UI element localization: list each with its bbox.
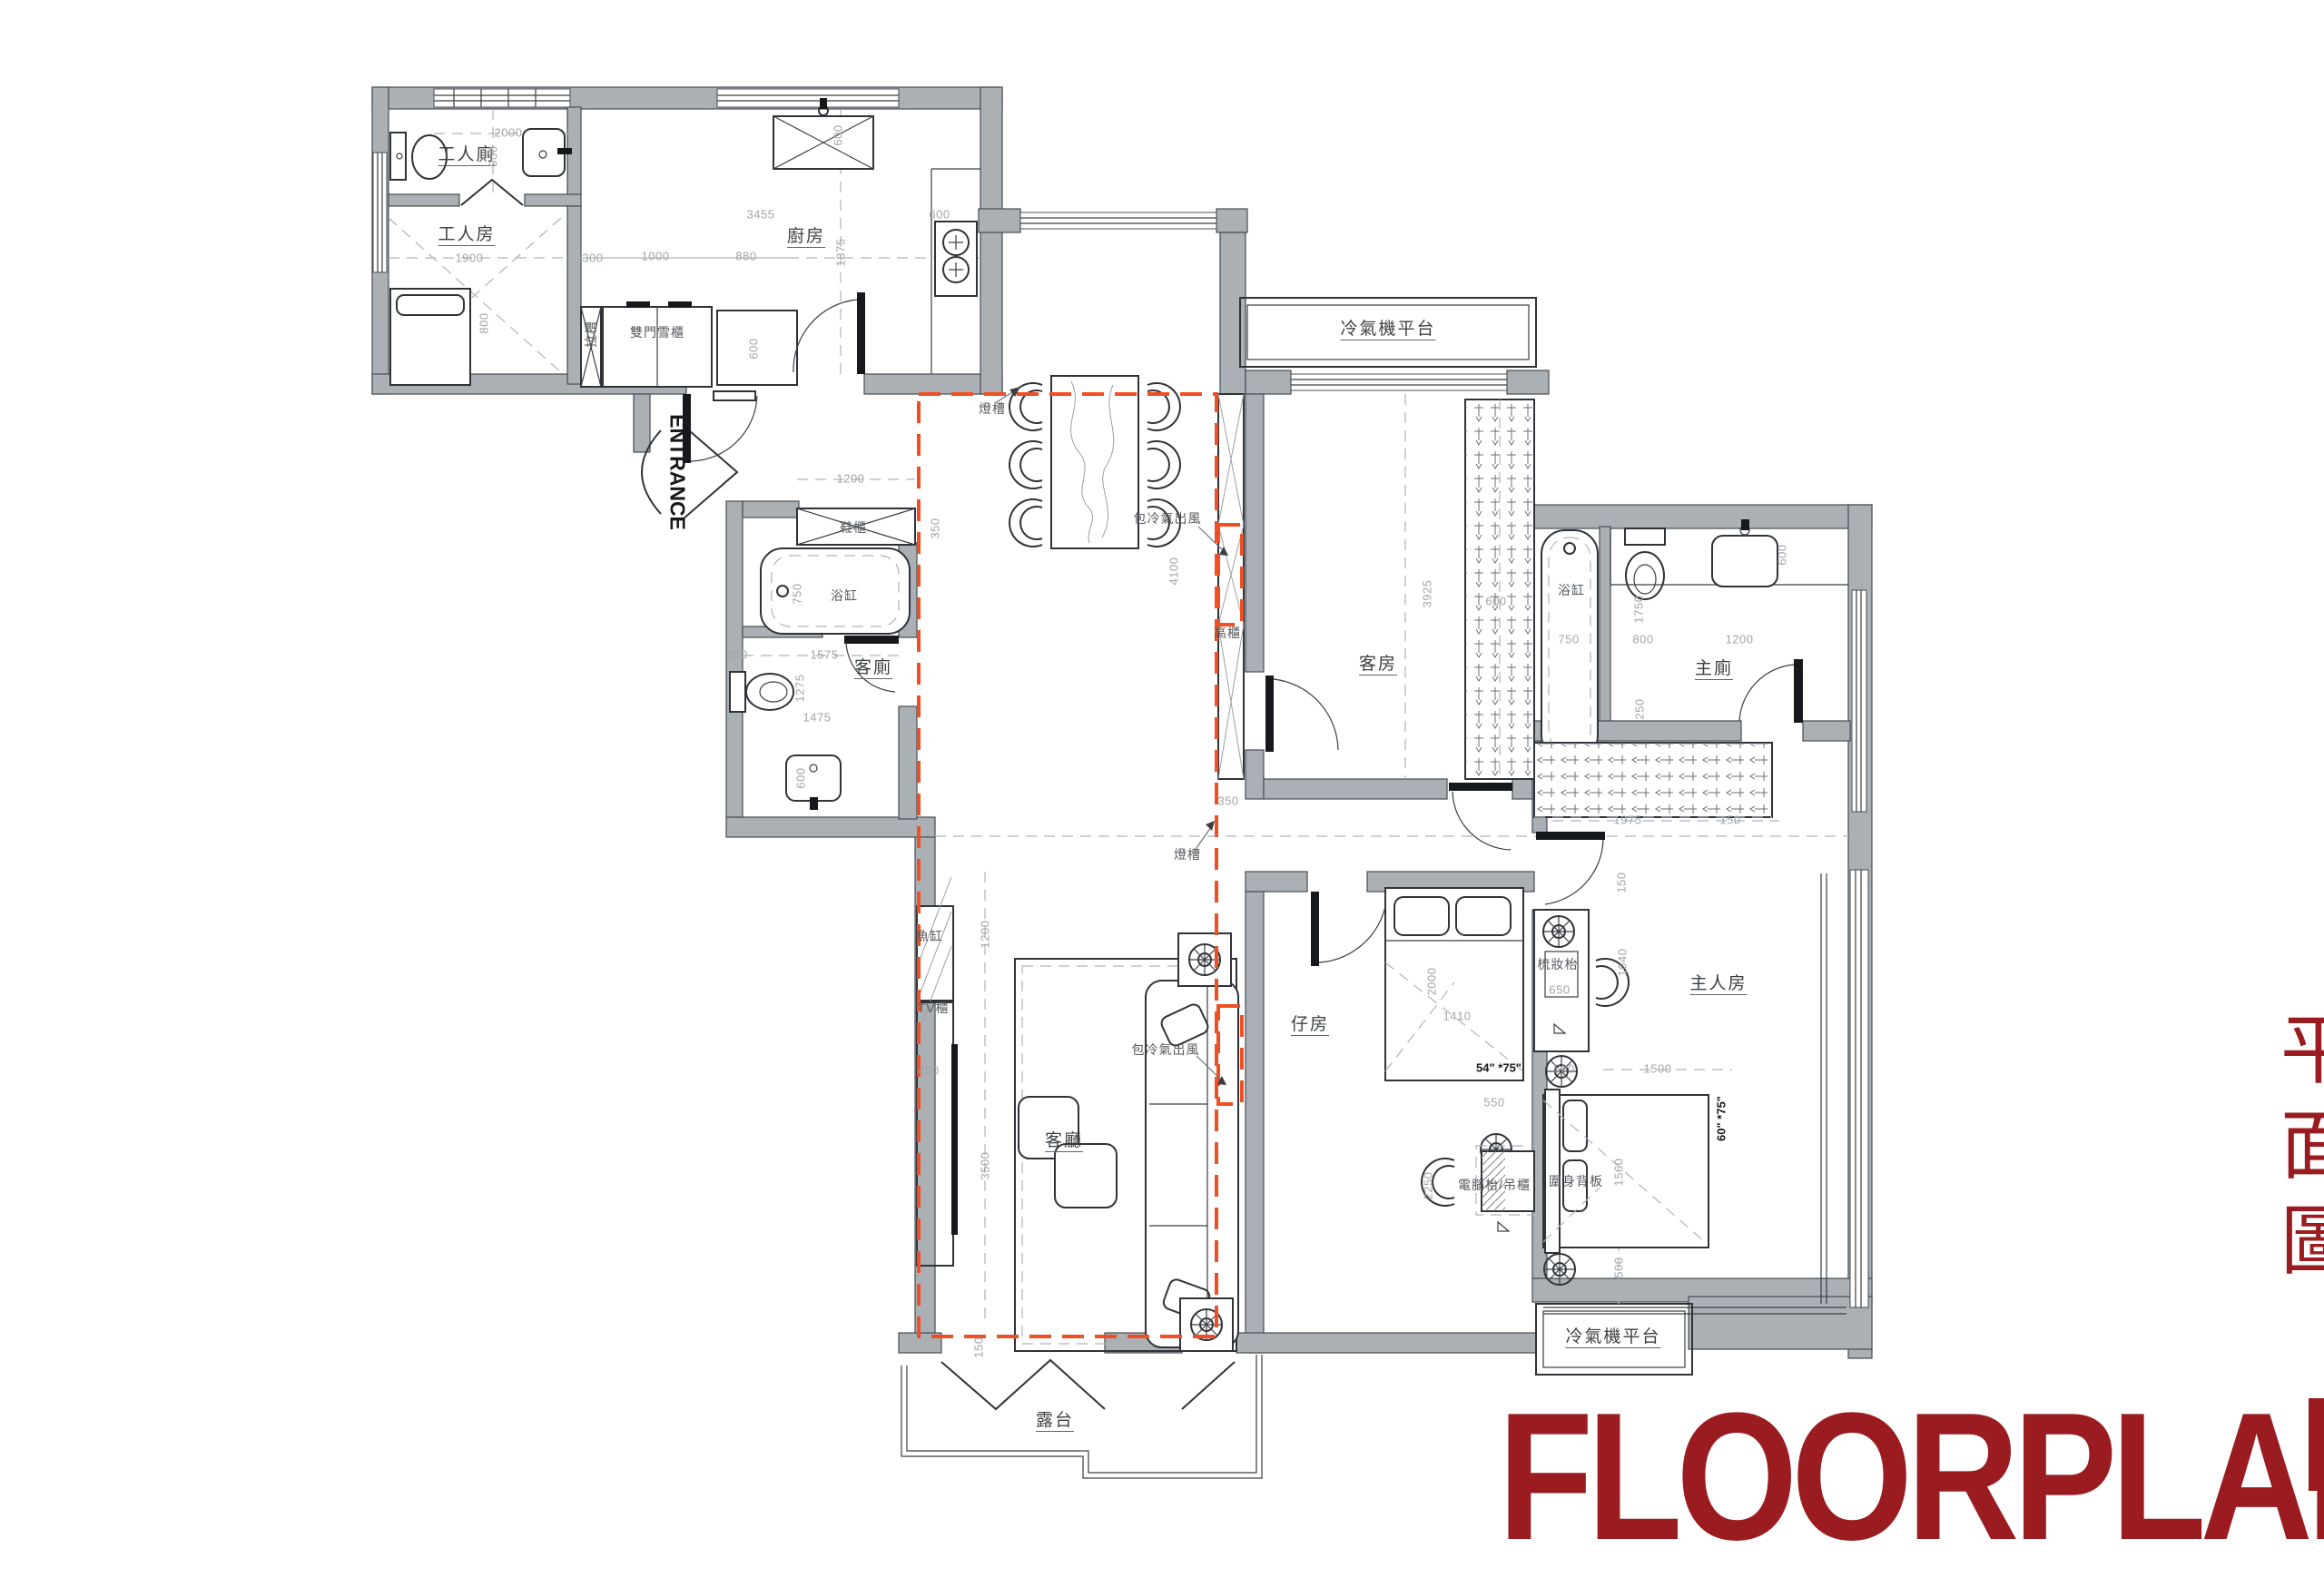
room-label-worker-room: 工人房: [438, 226, 495, 246]
dim-label: 400: [918, 1065, 939, 1077]
dim-label: 800: [1632, 634, 1653, 646]
dim-label: 1750: [1633, 596, 1645, 624]
dim-label: 1200: [980, 921, 991, 949]
dim-label: 650: [1549, 984, 1570, 996]
dim-label: 1560: [1613, 1159, 1625, 1187]
dim-label: 800: [478, 312, 490, 333]
feature-label-shoe-cabinet: 鞋櫃: [840, 521, 867, 534]
feature-label-ac-outlet-boxing-2: 包冷氣出風: [1132, 1043, 1200, 1056]
feature-label-master-bathtub: 浴缸: [1558, 584, 1585, 597]
dim-label: 300: [582, 252, 603, 264]
feature-label-dressing-table: 梳妝枱: [1538, 958, 1579, 971]
dim-label: 350: [930, 518, 941, 538]
feature-label-tall-cabinet: 高櫃: [1214, 626, 1241, 639]
dim-label: 1475: [803, 712, 832, 724]
dim-label: 150: [973, 1336, 985, 1357]
dim-label: 1000: [642, 251, 670, 262]
floorplan-page: 工人廁工人房廚房客廁客房主廁主人房仔房客廳露台冷氣機平台冷氣機平台雙門雪櫃拉槽鞋…: [0, 0, 2324, 1550]
dim-label: 150: [1616, 872, 1628, 893]
kids-bed-size-label: 54" *75": [1476, 1062, 1521, 1074]
dim-label: 1575: [811, 649, 839, 661]
chinese-title-char: 面: [2280, 1100, 2324, 1195]
feature-label-ac-outlet-boxing-1: 包冷氣出風: [1134, 512, 1202, 525]
chinese-title-char: 圖: [2280, 1195, 2324, 1290]
dim-label: 200: [726, 649, 747, 661]
dim-label: 3925: [1422, 580, 1433, 608]
dim-label: 1275: [794, 675, 806, 703]
room-label-kids-room: 仔房: [1291, 1016, 1329, 1036]
dim-label: 3455: [747, 209, 775, 221]
feature-label-double-door-fridge: 雙門雪櫃: [630, 326, 684, 339]
dim-label: 600: [1485, 596, 1506, 607]
room-label-ac-platform-top: 冷氣機平台: [1340, 321, 1435, 340]
dim-label: 880: [735, 251, 756, 262]
feature-label-light-trough-2: 燈槽: [1174, 848, 1201, 861]
plan-labels: 工人廁工人房廚房客廁客房主廁主人房仔房客廳露台冷氣機平台冷氣機平台雙門雪櫃拉槽鞋…: [0, 0, 2324, 1550]
dim-label: 900: [487, 145, 499, 166]
feature-label-fish-tank: 魚缸: [916, 930, 943, 942]
room-label-kitchen: 廚房: [787, 228, 825, 248]
floorplan-title: FLOORPLAN: [1498, 1386, 2324, 1568]
dim-label: 2000: [495, 127, 523, 139]
dim-label: 350: [1217, 795, 1238, 807]
dim-label: 3500: [980, 1152, 991, 1180]
dim-label: 1500: [1644, 1063, 1672, 1075]
dim-label: 600: [832, 124, 844, 145]
chinese-title-char: 平: [2280, 1004, 2324, 1100]
feature-label-pullout-cabinet: 拉槽: [585, 321, 597, 348]
feature-label-tv-cabinet: TV櫃: [918, 1001, 950, 1014]
room-label-master-bedroom: 主人房: [1689, 975, 1747, 995]
dim-label: 250: [1634, 698, 1646, 719]
dim-label: 750: [792, 583, 803, 604]
dim-label: 1640: [1617, 949, 1629, 977]
master-bed-size-label: 60" *75": [1716, 1096, 1728, 1141]
dim-label: 1200: [837, 473, 865, 485]
entrance-label: ENTRANCE: [667, 414, 688, 530]
dim-label: 2000: [1426, 968, 1438, 996]
dim-label: 600: [1777, 544, 1788, 565]
dim-label: 4100: [1168, 557, 1180, 586]
dim-label: 500: [1613, 1257, 1625, 1277]
room-label-ac-platform-bottom: 冷氣機平台: [1565, 1328, 1660, 1348]
dim-label: 150: [1719, 814, 1740, 826]
feature-label-light-trough-1: 燈槽: [979, 402, 1006, 415]
dim-label: 500: [1553, 1063, 1574, 1075]
dim-label: 1200: [1726, 634, 1754, 646]
feature-label-computer-desk: 電腦枱/吊櫃: [1458, 1179, 1531, 1191]
dim-label: 600: [929, 209, 950, 221]
dim-label: 2250: [1423, 1172, 1434, 1200]
dim-label: 1875: [835, 239, 847, 267]
room-label-guest-room: 客房: [1359, 656, 1397, 676]
room-label-guest-toilet: 客廁: [854, 659, 892, 679]
dim-label: 550: [1483, 1097, 1504, 1109]
dim-label: 600: [795, 767, 807, 788]
feature-label-guest-bathtub: 浴缸: [831, 589, 858, 602]
dim-label: 1900: [456, 252, 484, 264]
dim-label: 1410: [1443, 1011, 1472, 1022]
dim-label: 600: [748, 338, 760, 359]
room-label-terrace: 露台: [1036, 1412, 1074, 1432]
room-label-living-room: 客廳: [1045, 1132, 1083, 1152]
dim-label: 1975: [1614, 814, 1642, 826]
room-label-master-toilet: 主廁: [1695, 660, 1733, 680]
floorplan-title-chinese: 平面圖: [2280, 1004, 2324, 1290]
dim-label: 750: [1558, 634, 1579, 646]
floorplan-title-chinese-partial-char: [2309, 1398, 2324, 1491]
feature-label-headboard-panel: 圍身背板: [1549, 1175, 1603, 1188]
